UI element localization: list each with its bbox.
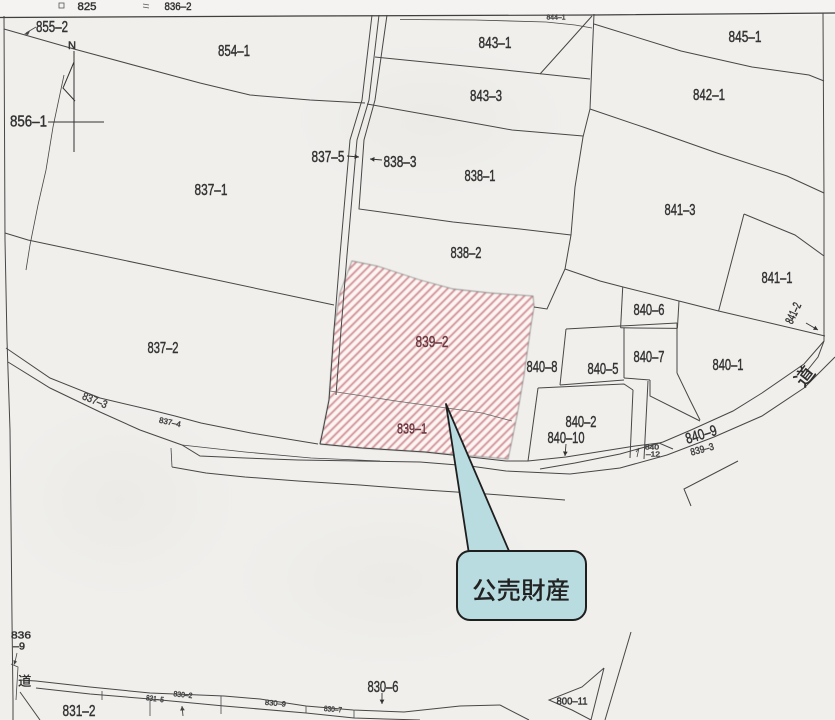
- svg-text:837–5: 837–5: [312, 149, 345, 166]
- svg-text:840–6: 840–6: [634, 302, 665, 319]
- svg-text:841–3: 841–3: [665, 202, 696, 219]
- svg-text:856–1: 856–1: [10, 113, 47, 130]
- svg-text:838–1: 838–1: [465, 168, 496, 185]
- svg-text:843–1: 843–1: [479, 35, 512, 52]
- svg-text:840–8: 840–8: [527, 359, 558, 376]
- svg-text:830–6: 830–6: [368, 679, 399, 696]
- svg-text:845–1: 845–1: [729, 29, 762, 46]
- svg-text:844–1: 844–1: [547, 13, 566, 22]
- svg-text:855–2: 855–2: [36, 19, 68, 36]
- svg-text:837–1: 837–1: [195, 182, 228, 199]
- svg-text:800–11: 800–11: [557, 697, 588, 708]
- svg-text:839–2: 839–2: [416, 334, 449, 351]
- svg-text:836–2: 836–2: [165, 1, 192, 13]
- svg-text:831–2: 831–2: [63, 703, 96, 720]
- svg-text:837–2: 837–2: [148, 340, 179, 357]
- svg-text:830–7: 830–7: [324, 704, 343, 715]
- svg-text:840–2: 840–2: [566, 414, 597, 431]
- svg-text:830–9: 830–9: [265, 698, 287, 709]
- svg-text:839–1: 839–1: [397, 420, 427, 437]
- svg-text:854–1: 854–1: [218, 43, 250, 60]
- svg-text:842–1: 842–1: [693, 87, 725, 104]
- svg-text:838–2: 838–2: [451, 245, 482, 262]
- svg-text:838–3: 838–3: [384, 154, 417, 171]
- svg-text:825: 825: [78, 1, 97, 13]
- svg-text:840–7: 840–7: [634, 349, 665, 366]
- svg-text:836: 836: [11, 631, 32, 642]
- svg-text:841–1: 841–1: [762, 270, 793, 287]
- svg-text:–9: –9: [13, 642, 25, 653]
- svg-text:840–5: 840–5: [588, 361, 619, 378]
- svg-text:843–3: 843–3: [470, 88, 502, 105]
- svg-text:N: N: [68, 40, 76, 52]
- svg-text:840–1: 840–1: [713, 357, 744, 374]
- svg-text:–12: –12: [646, 452, 660, 459]
- svg-text:840: 840: [645, 445, 659, 452]
